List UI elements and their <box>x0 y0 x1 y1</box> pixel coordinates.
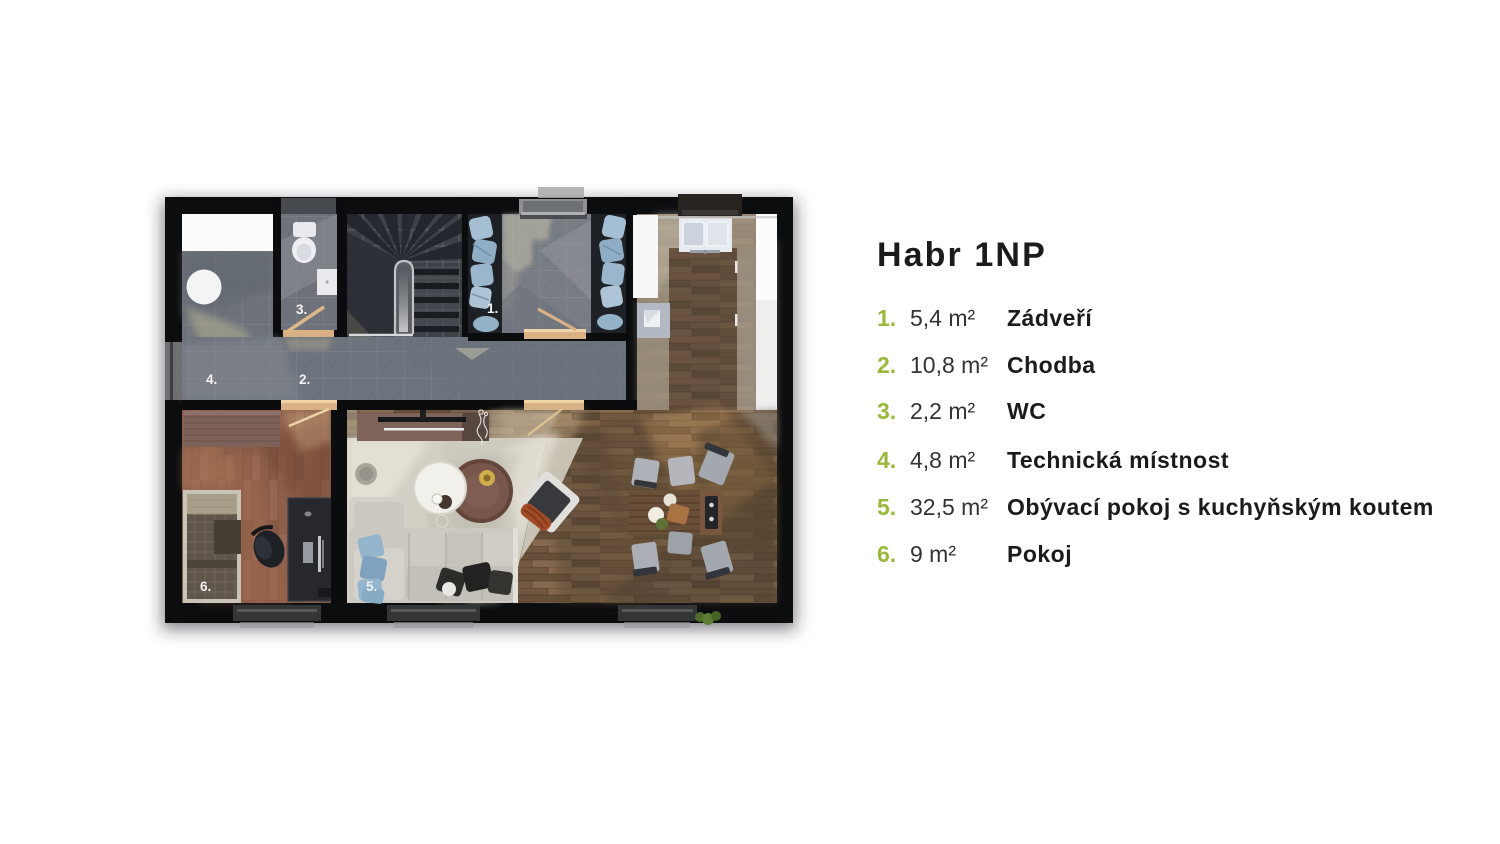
svg-text:3.: 3. <box>296 302 307 317</box>
svg-text:4.: 4. <box>206 372 217 387</box>
svg-text:2.: 2. <box>299 372 310 387</box>
svg-text:5.: 5. <box>366 579 377 594</box>
svg-text:1.: 1. <box>487 301 498 316</box>
svg-text:6.: 6. <box>200 579 211 594</box>
